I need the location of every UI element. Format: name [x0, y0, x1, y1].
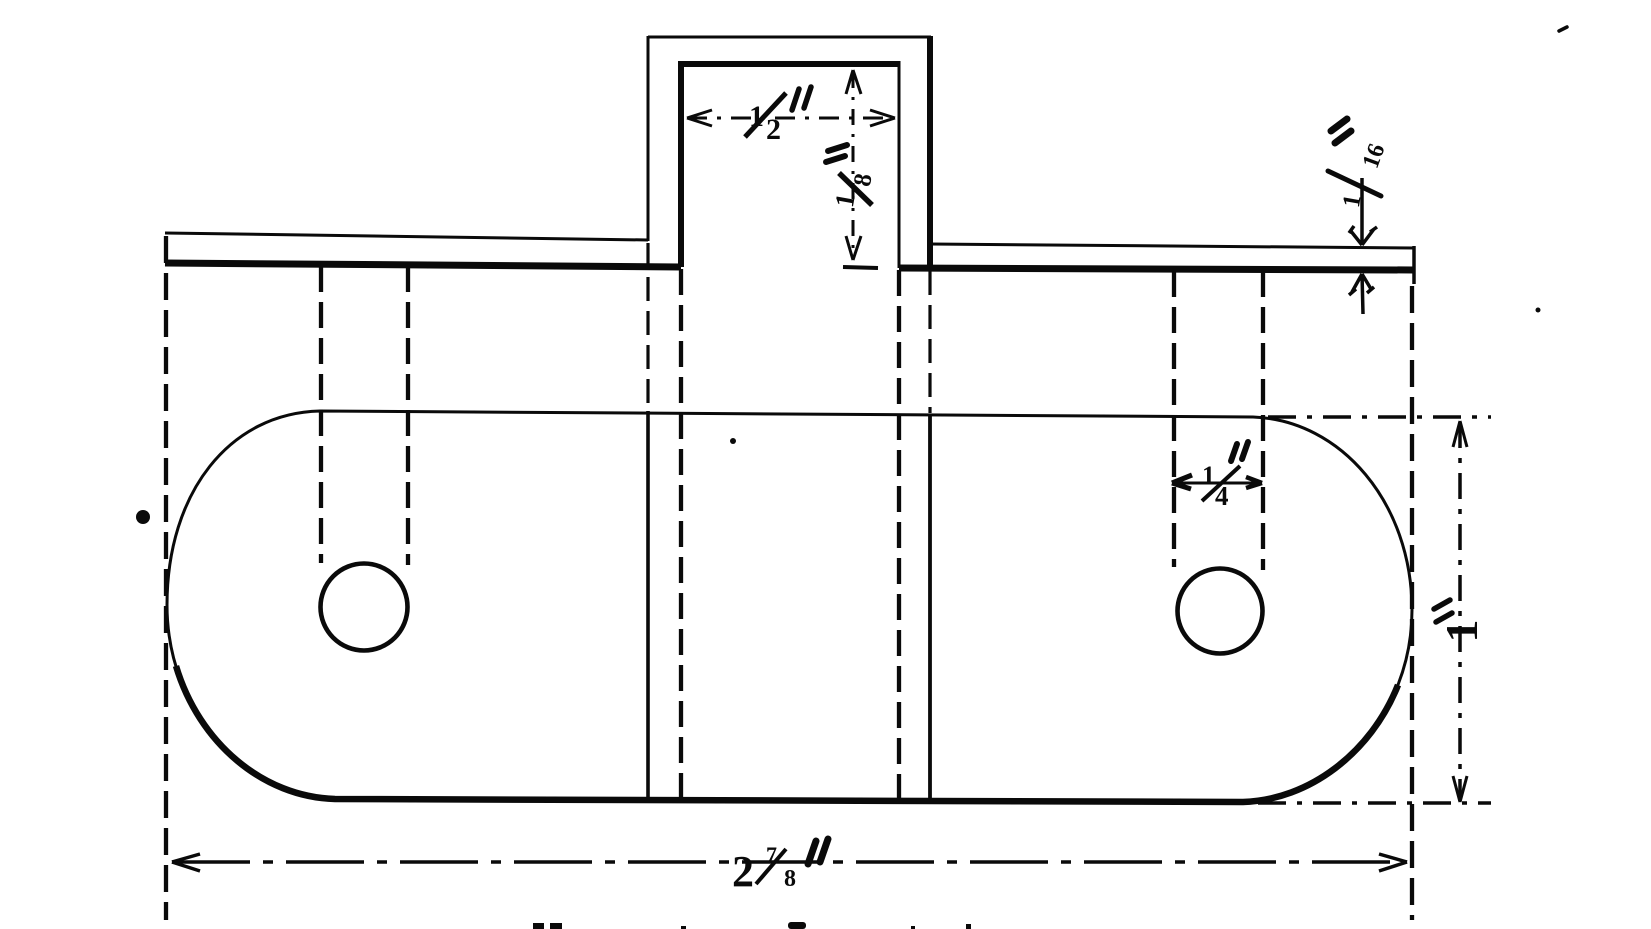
svg-text:2: 2	[732, 847, 754, 896]
svg-text:2: 2	[766, 113, 781, 146]
svg-text:1: 1	[1202, 461, 1215, 490]
svg-text:8: 8	[784, 866, 796, 892]
svg-text:4: 4	[1215, 481, 1229, 511]
svg-text:1: 1	[1436, 620, 1487, 643]
